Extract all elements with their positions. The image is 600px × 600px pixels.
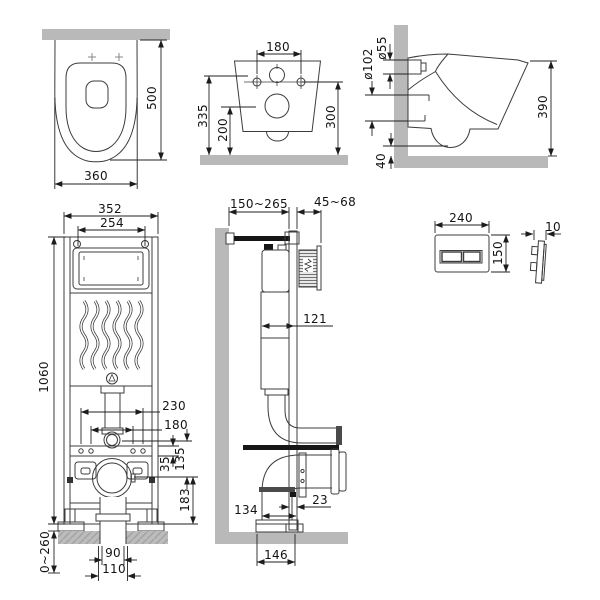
drawing-canvas — [0, 0, 600, 600]
dim-inlet-to-outlet: 135 — [174, 447, 186, 471]
top-fixing-left — [74, 241, 81, 248]
wall-section — [42, 29, 170, 40]
dim-outlet-depth: 134 — [234, 504, 258, 516]
dim-bracket-span-outer: 230 — [162, 400, 186, 412]
flush-opening — [86, 81, 108, 108]
toilet-outline — [55, 40, 137, 162]
outlet-socket — [93, 459, 132, 498]
view-toilet-side — [365, 25, 557, 169]
wall-anchor-plate — [226, 233, 234, 244]
flush-pipe-collar — [101, 386, 124, 393]
drop-pipe-collar — [96, 514, 130, 521]
inlet-stub — [408, 60, 421, 74]
inlet-hole — [270, 68, 285, 83]
dim-outlet-height: 200 — [217, 118, 229, 142]
access-panel — [73, 248, 149, 289]
dim-outlet-pipe-width: 90 — [105, 547, 121, 559]
dim-inlet-diameter: ø55 — [376, 36, 388, 60]
outlet-boss — [267, 132, 289, 142]
dim-mount-height: 300 — [325, 105, 337, 129]
wall-bracket-rod — [234, 236, 290, 241]
dim-base-depth: 146 — [264, 549, 288, 561]
dim-outlet-diameter: ø102 — [362, 48, 374, 79]
dim-bolt-spacing: 180 — [266, 41, 290, 53]
floor-section — [215, 532, 348, 544]
dim-cistern-depth: 121 — [303, 313, 327, 325]
flush-button-large — [442, 252, 462, 262]
dim-plate-thickness: 10 — [545, 221, 561, 233]
bowl-inner-line — [436, 54, 498, 125]
dim-crossbar-height: 35 — [159, 456, 171, 472]
dim-panel-width: 254 — [100, 217, 124, 229]
dim-outlet-to-bottom: 183 — [179, 488, 191, 512]
outlet-bend-pipe — [262, 455, 300, 492]
fill-valve-cap — [264, 244, 273, 250]
dim-frame-depth-range: 150~265 — [230, 198, 288, 210]
dim-plate-height: 150 — [492, 241, 504, 265]
dim-outlet-socket-width: 110 — [102, 563, 126, 575]
flush-plate-profile — [530, 240, 547, 283]
wall-section — [215, 228, 229, 532]
flush-button-small — [464, 252, 481, 262]
outlet-flange — [331, 449, 339, 494]
frame-post — [289, 231, 297, 530]
adapter-plate — [299, 453, 306, 497]
cistern-cover — [261, 292, 289, 389]
cistern-tank — [262, 250, 289, 292]
dim-rear-height: 335 — [197, 104, 209, 128]
dim-bracket-span-inner: 180 — [164, 419, 188, 431]
dim-foot-adjust-range: 0~260 — [39, 531, 51, 573]
cistern-wave-pattern — [81, 301, 142, 369]
dim-frame-height: 1060 — [38, 361, 50, 393]
dim-floor-clearance: 40 — [375, 153, 387, 169]
dim-plate-width: 240 — [449, 212, 473, 224]
dim-toilet-width: 360 — [84, 170, 108, 182]
dim-toilet-depth: 500 — [146, 86, 158, 110]
dim-side-height: 390 — [537, 95, 549, 119]
mount-bracket-bar — [243, 445, 339, 450]
dim-frame-width: 352 — [98, 203, 122, 215]
technical-drawing-page: 500 360 180 335 200 300 ø55 ø102 390 40 … — [0, 0, 600, 600]
frame-outer — [64, 237, 158, 524]
wall-section — [394, 25, 408, 156]
finish-plate — [317, 246, 321, 290]
dim-frame-post-depth: 23 — [312, 494, 328, 506]
dim-finish-depth-range: 45~68 — [314, 196, 356, 208]
mounting-marks — [88, 53, 123, 61]
floor-section — [394, 156, 548, 168]
floor-section — [200, 155, 348, 165]
toilet-top-dimension-lines — [55, 40, 167, 189]
view-frame-front — [48, 212, 198, 581]
seat-outline — [66, 63, 126, 152]
toilet-rear-outline — [235, 61, 321, 132]
outlet-hole — [265, 94, 289, 118]
